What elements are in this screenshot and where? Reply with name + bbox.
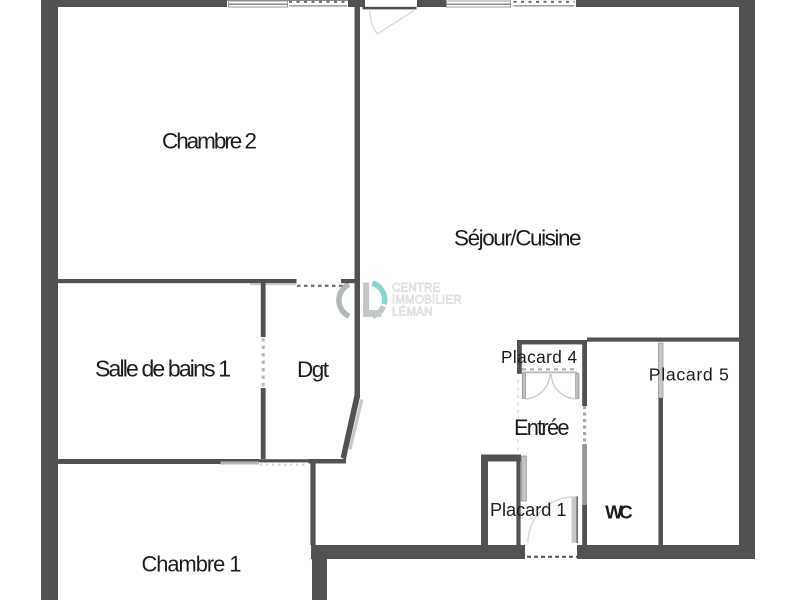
svg-text:Chambre 1: Chambre 1 [142,552,242,577]
svg-text:Salle de bains 1: Salle de bains 1 [95,355,231,381]
svg-text:Placard 5: Placard 5 [649,364,729,384]
svg-text:C: C [619,501,633,522]
svg-text:Entrée: Entrée [514,415,570,440]
svg-text:Placard 4: Placard 4 [501,347,577,367]
svg-text:LÉMAN: LÉMAN [392,306,433,319]
svg-text:Séjour/Cuisine: Séjour/Cuisine [454,225,582,250]
svg-text:CENTRE: CENTRE [392,282,441,294]
svg-text:IMMOBILIER: IMMOBILIER [392,294,462,306]
svg-text:Placard 1: Placard 1 [490,500,567,520]
svg-text:Dgt: Dgt [297,357,330,382]
svg-text:Chambre 2: Chambre 2 [162,128,257,153]
